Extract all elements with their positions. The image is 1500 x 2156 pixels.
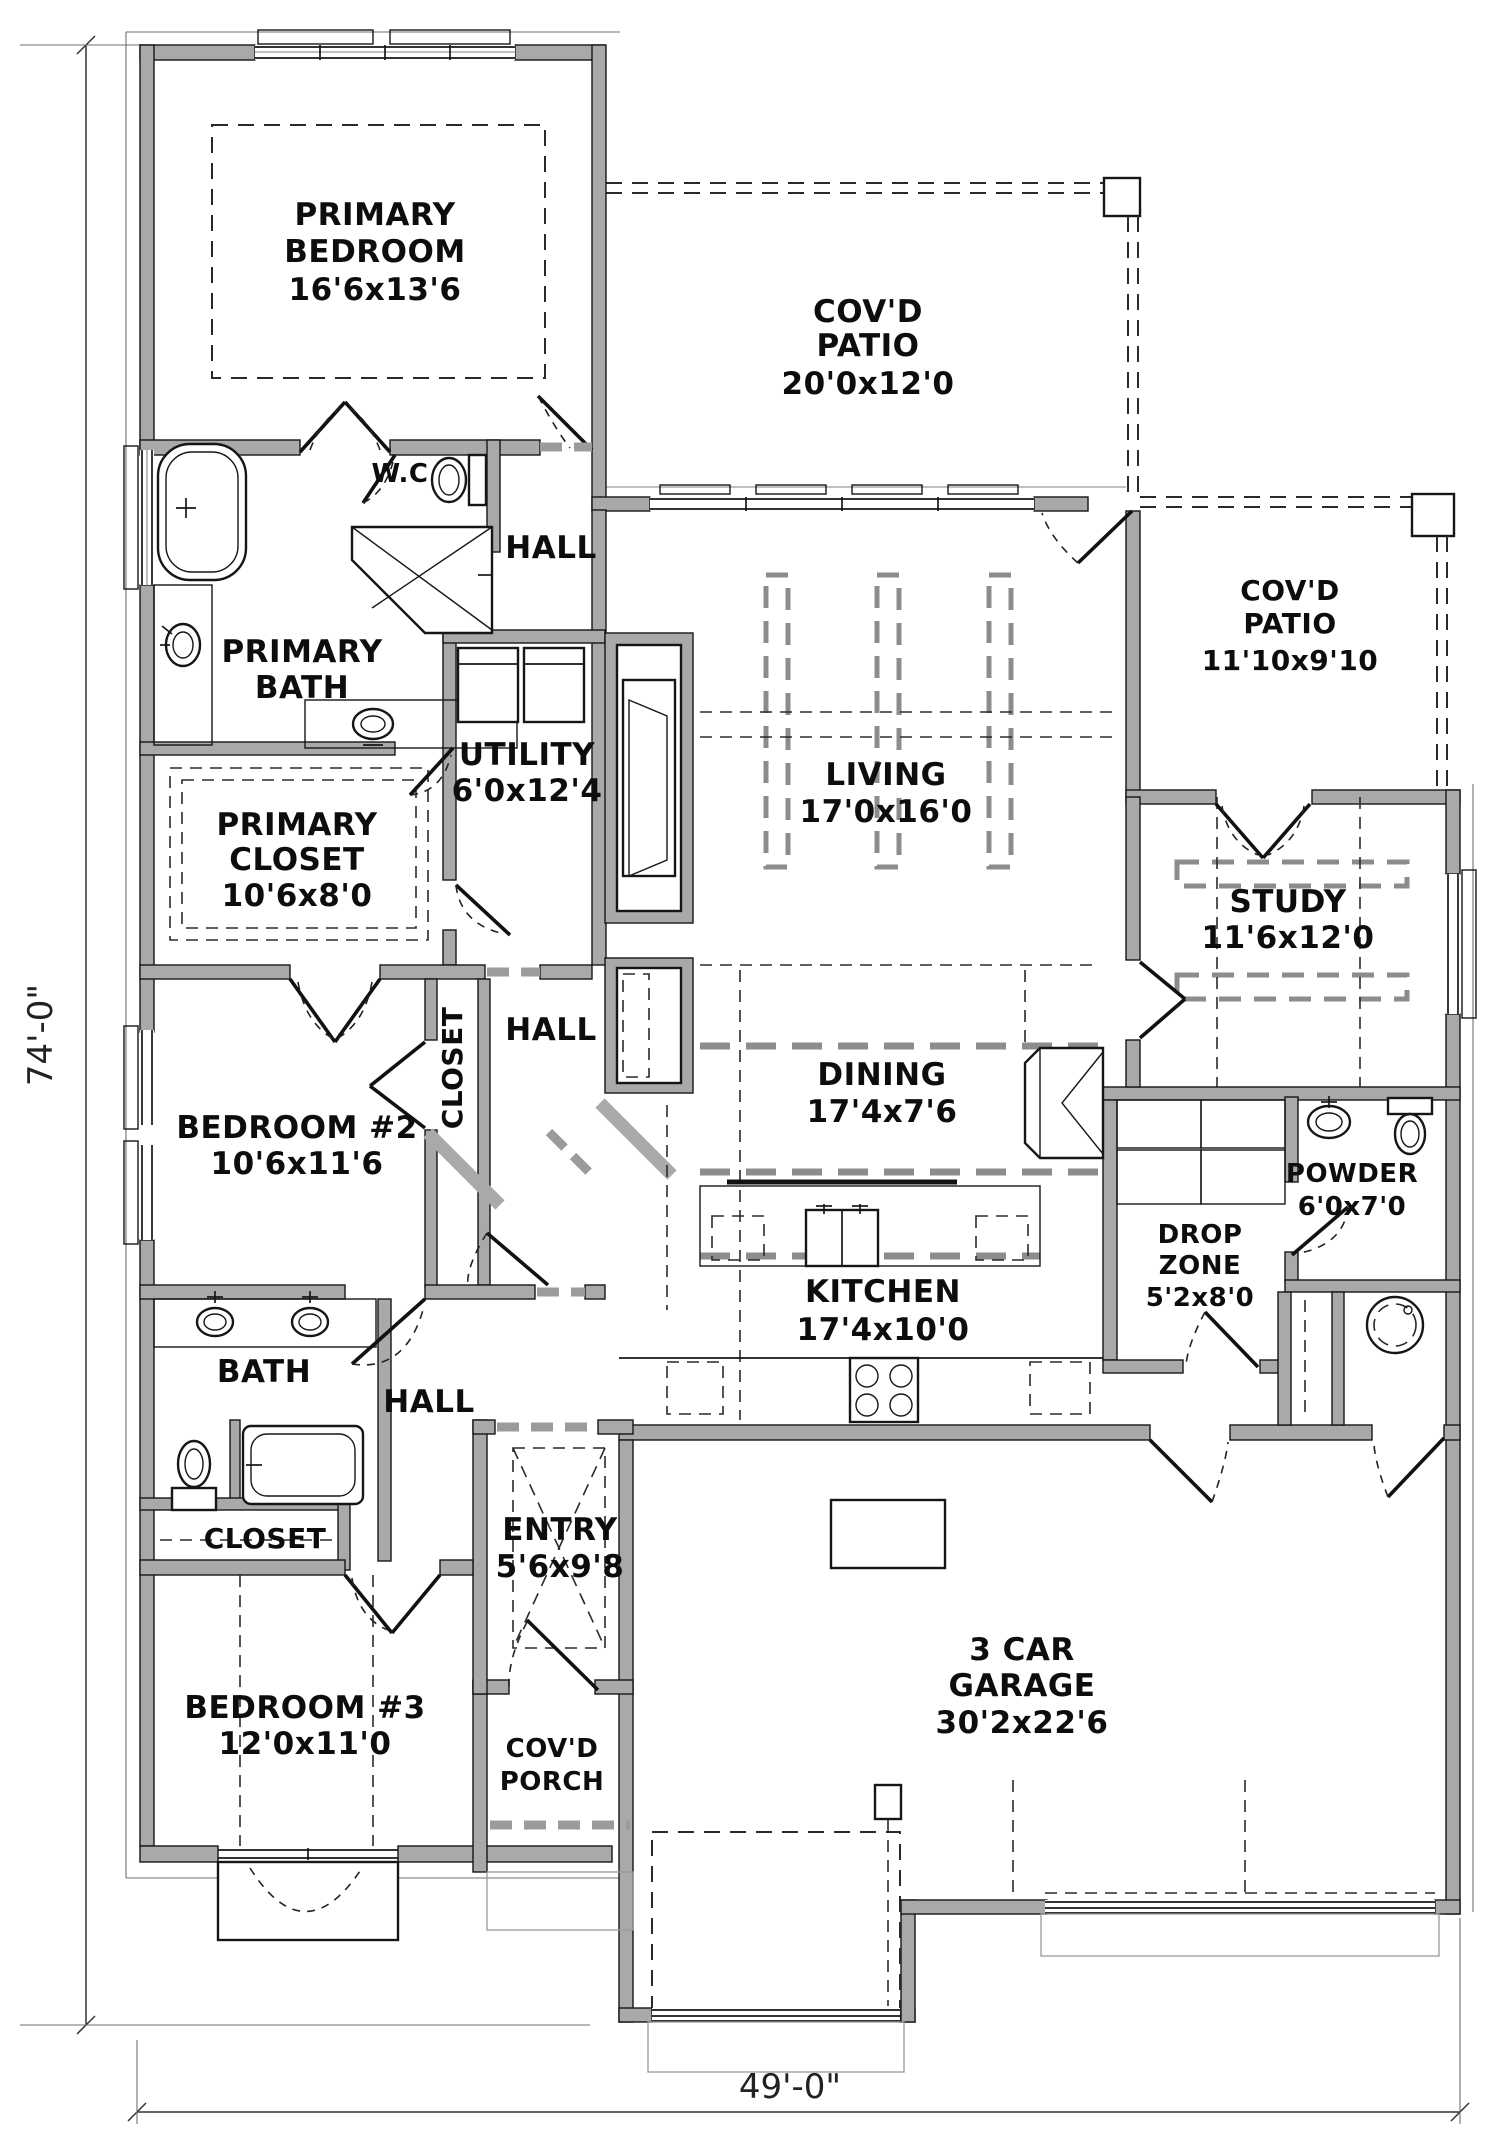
- primary-bedroom-double-door: [300, 402, 390, 452]
- drop-zone-cubbies: [1117, 1100, 1285, 1204]
- garage-door-sill-right: [1045, 1900, 1435, 1914]
- svg-text:20'0x12'0: 20'0x12'0: [782, 366, 955, 402]
- label-covd-patio-side: COV'D: [1240, 574, 1340, 607]
- svg-text:ZONE: ZONE: [1159, 1251, 1241, 1281]
- label-bedroom2: BEDROOM #2: [176, 1110, 417, 1146]
- bedroom2-double-door: [290, 979, 380, 1042]
- svg-text:11'6x12'0: 11'6x12'0: [1202, 920, 1375, 956]
- label-entry: ENTRY: [502, 1512, 617, 1548]
- svg-text:6'0x7'0: 6'0x7'0: [1298, 1192, 1407, 1222]
- garage-door-sill-left: [652, 2008, 900, 2022]
- svg-text:PATIO: PATIO: [1243, 607, 1336, 640]
- overall-height-dimension: 74'-0": [21, 984, 61, 1086]
- bath2-vanity: [154, 1291, 376, 1347]
- water-heater: [1367, 1297, 1423, 1353]
- dimension-lines: [20, 36, 1469, 2124]
- wc-toilet: [432, 455, 486, 505]
- utility-door: [456, 885, 510, 935]
- kitchen-counter: [619, 1358, 1103, 1422]
- svg-text:17'4x7'6: 17'4x7'6: [807, 1094, 958, 1130]
- label-drop-zone: DROP: [1158, 1220, 1243, 1250]
- label-utility: UTILITY: [459, 737, 595, 773]
- svg-text:PORCH: PORCH: [500, 1767, 605, 1797]
- primary-bedroom-hall-door: [538, 396, 592, 450]
- floorplan-page: PRIMARY BEDROOM 16'6x13'6 COV'D PATIO 20…: [0, 0, 1500, 2156]
- svg-text:6'0x12'4: 6'0x12'4: [452, 773, 603, 809]
- label-bath2: BATH: [217, 1354, 311, 1390]
- label-primary-bedroom: PRIMARY: [294, 197, 455, 233]
- label-bedroom3: BEDROOM #3: [184, 1690, 425, 1726]
- bath2-tub: [243, 1426, 363, 1504]
- primary-vanity: [154, 585, 212, 745]
- label-hall-upper: HALL: [505, 530, 596, 566]
- bedroom3-door: [345, 1575, 440, 1633]
- neo-angle-shower: [352, 527, 492, 633]
- primary-bedroom-window: [255, 30, 515, 60]
- drop-zone-door: [1186, 1312, 1258, 1367]
- bath2-toilet: [172, 1441, 216, 1510]
- svg-text:17'0x16'0: 17'0x16'0: [800, 794, 973, 830]
- bedroom3-bay-window: [218, 1848, 398, 1940]
- label-covd-patio-rear: COV'D: [813, 294, 923, 330]
- driveway-apron-left: [648, 2022, 904, 2072]
- label-kitchen: KITCHEN: [805, 1274, 961, 1310]
- label-powder: POWDER: [1286, 1159, 1418, 1189]
- study-patio-double-door: [1216, 804, 1310, 858]
- label-closet-lower: CLOSET: [204, 1522, 327, 1555]
- primary-bath-window: [124, 446, 154, 589]
- svg-text:PATIO: PATIO: [817, 328, 920, 364]
- svg-text:10'6x8'0: 10'6x8'0: [222, 878, 373, 914]
- svg-text:GARAGE: GARAGE: [949, 1668, 1096, 1704]
- label-closet-mid: CLOSET: [436, 1007, 469, 1130]
- svg-text:5'6x9'8: 5'6x9'8: [496, 1549, 625, 1585]
- powder-sink: [1308, 1096, 1350, 1138]
- label-primary-closet: PRIMARY: [216, 807, 377, 843]
- svg-text:11'10x9'10: 11'10x9'10: [1202, 644, 1379, 677]
- garage-entry-door: [1150, 1440, 1228, 1502]
- label-covd-porch: COV'D: [506, 1734, 599, 1764]
- svg-text:CLOSET: CLOSET: [229, 842, 364, 878]
- fireplace: [605, 633, 693, 923]
- front-door: [509, 1620, 598, 1690]
- study-window: [1446, 870, 1476, 1018]
- washer-dryer: [458, 648, 584, 722]
- windows: [124, 30, 1476, 1940]
- dining-buffet-bay: [1025, 1048, 1103, 1158]
- label-hall-mid: HALL: [505, 1012, 596, 1048]
- svg-text:BATH: BATH: [255, 670, 349, 706]
- garage-door-overhead-left: [652, 1832, 900, 2012]
- label-study: STUDY: [1229, 884, 1346, 920]
- garage-equipment-pad: [831, 1500, 945, 1568]
- label-hall-lower: HALL: [383, 1384, 474, 1420]
- water-heater-closet-door: [1374, 1438, 1444, 1497]
- living-patio-door: [1042, 511, 1132, 563]
- diagonal-cased-opening: [549, 1132, 597, 1180]
- label-wc: W.C: [371, 459, 428, 489]
- svg-text:BEDROOM: BEDROOM: [284, 234, 465, 270]
- label-dining: DINING: [817, 1057, 946, 1093]
- living-sliding-doors: [650, 485, 1034, 511]
- porch-slab: [487, 1872, 633, 1930]
- svg-text:5'2x8'0: 5'2x8'0: [1146, 1283, 1255, 1313]
- overall-width-dimension: 49'-0": [739, 2067, 841, 2107]
- svg-text:10'6x11'6: 10'6x11'6: [211, 1146, 384, 1182]
- svg-text:30'2x22'6: 30'2x22'6: [936, 1705, 1109, 1741]
- soaking-tub: [158, 444, 246, 580]
- floorplan-drawing: PRIMARY BEDROOM 16'6x13'6 COV'D PATIO 20…: [0, 0, 1500, 2156]
- label-living: LIVING: [825, 757, 946, 793]
- powder-toilet: [1388, 1098, 1432, 1154]
- svg-text:16'6x13'6: 16'6x13'6: [289, 272, 462, 308]
- driveway-apron-right: [1041, 1914, 1439, 1956]
- dining-hutch: [605, 958, 693, 1093]
- patio-roof-lines: [606, 178, 1454, 788]
- label-garage: 3 CAR: [969, 1632, 1074, 1668]
- svg-text:12'0x11'0: 12'0x11'0: [219, 1726, 392, 1762]
- label-primary-bath: PRIMARY: [221, 634, 382, 670]
- bedroom2-windows: [124, 1026, 154, 1244]
- entry-vault: [513, 1448, 605, 1648]
- exterior-offset-lines: [126, 32, 1473, 1912]
- garage-door-posts: [875, 1785, 901, 2006]
- svg-text:17'4x10'0: 17'4x10'0: [797, 1312, 970, 1348]
